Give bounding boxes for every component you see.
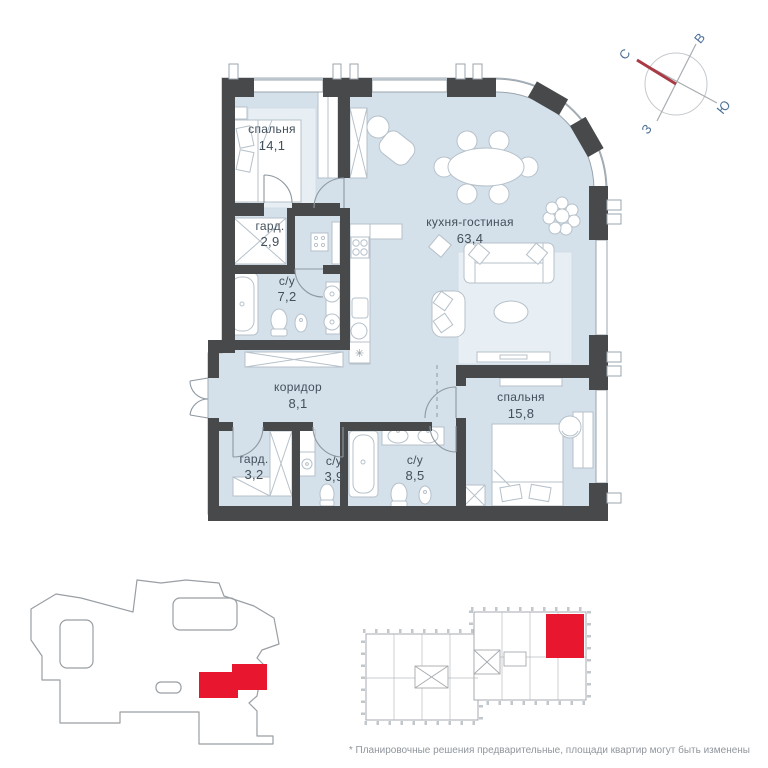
toilet-2 bbox=[320, 484, 334, 506]
room-area-bath1: 7,2 bbox=[278, 289, 297, 304]
room-area-bath2: 3,9 bbox=[325, 469, 344, 484]
room-label-wardrobe1: гард. bbox=[255, 219, 284, 233]
plate-highlighted-unit bbox=[546, 614, 584, 658]
disclaimer-note: * Планировочные решения предварительные,… bbox=[349, 744, 750, 756]
coffee-table bbox=[494, 301, 528, 323]
bedroom2-closet-box bbox=[464, 485, 485, 506]
site-building-1 bbox=[60, 620, 93, 668]
tv-board-bedroom2 bbox=[500, 378, 562, 386]
room-label-bedroom2: спальня bbox=[497, 390, 545, 404]
svg-text:✳: ✳ bbox=[355, 348, 364, 360]
compass-north-label: С bbox=[616, 46, 634, 63]
room-label-corridor: коридор bbox=[274, 380, 322, 394]
bidet-1 bbox=[295, 314, 307, 332]
bidet-2 bbox=[419, 486, 431, 504]
living-cabinet bbox=[350, 108, 367, 178]
site-plan bbox=[31, 580, 279, 744]
washer bbox=[299, 430, 315, 476]
site-pond bbox=[156, 682, 181, 693]
compass-east-label: В bbox=[691, 30, 708, 46]
toilet-1 bbox=[271, 309, 287, 336]
compass-north-needle bbox=[637, 60, 676, 84]
bathtub-2 bbox=[349, 431, 378, 497]
room-label-wardrobe2: гард. bbox=[239, 452, 268, 466]
site-highlighted-building bbox=[199, 664, 267, 698]
compass-west-label: З bbox=[638, 121, 655, 137]
wall-basins bbox=[324, 282, 340, 334]
floor-plan-canvas: ✳ bbox=[0, 0, 768, 768]
bed-double-2 bbox=[492, 424, 563, 506]
room-area-kitchen-living: 63,4 bbox=[457, 231, 484, 246]
toilet-3 bbox=[391, 483, 407, 507]
room-area-bedroom1: 14,1 bbox=[259, 138, 286, 153]
room-label-bath2: с/у bbox=[326, 454, 342, 468]
floor-plan-page: ✳ bbox=[0, 0, 768, 768]
floor-plate-plan bbox=[363, 609, 589, 723]
room-area-wardrobe1: 2,9 bbox=[261, 234, 280, 249]
room-area-bath3: 8,5 bbox=[406, 468, 425, 483]
room-label-bedroom1: спальня bbox=[248, 122, 296, 136]
compass-south-label: Ю bbox=[714, 97, 734, 117]
site-outline bbox=[31, 580, 279, 744]
room-area-bedroom2: 15,8 bbox=[508, 406, 535, 421]
sofa bbox=[464, 243, 554, 283]
compass-rose: С В Ю З bbox=[616, 30, 734, 137]
corridor-wardrobe bbox=[245, 352, 343, 367]
tv-console-living bbox=[477, 352, 550, 362]
room-area-wardrobe2: 3,2 bbox=[245, 467, 264, 482]
room-label-kitchen-living: кухня-гостиная bbox=[426, 215, 514, 229]
bedroom2-chair bbox=[559, 416, 581, 438]
fridge: ✳ bbox=[349, 342, 370, 363]
room-label-bath1: с/у bbox=[279, 274, 295, 288]
room-label-bath3: с/у bbox=[407, 453, 423, 467]
armchair bbox=[432, 291, 465, 337]
room-area-corridor: 8,1 bbox=[289, 396, 308, 411]
site-building-2 bbox=[173, 598, 237, 630]
